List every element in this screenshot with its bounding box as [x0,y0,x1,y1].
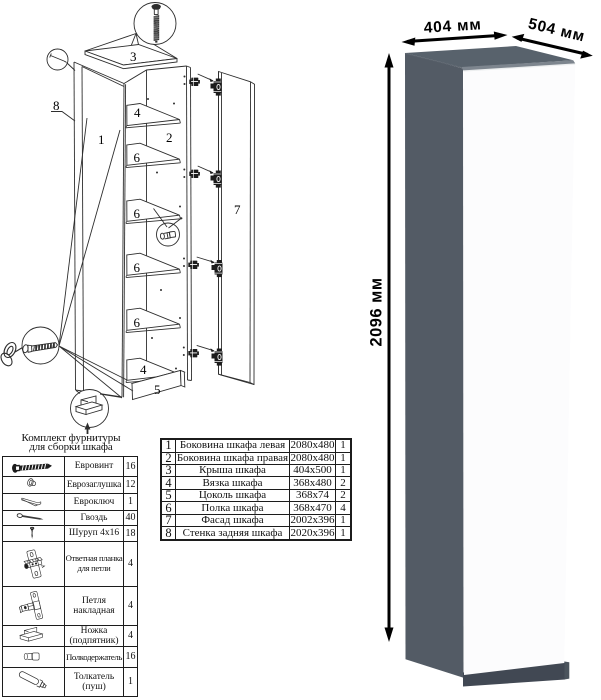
svg-text:4: 4 [134,105,141,120]
svg-text:2: 2 [166,130,173,145]
svg-text:3: 3 [130,49,137,64]
svg-text:8: 8 [53,98,60,113]
svg-text:6: 6 [134,315,141,330]
svg-text:5: 5 [154,382,161,397]
svg-text:1: 1 [98,132,105,147]
svg-text:6: 6 [134,150,141,165]
svg-text:6: 6 [134,260,141,275]
svg-text:7: 7 [234,202,241,217]
svg-text:6: 6 [134,206,141,221]
svg-text:404 мм: 404 мм [423,16,482,37]
svg-text:2096 мм: 2096 мм [368,277,386,346]
svg-text:4: 4 [140,362,147,377]
